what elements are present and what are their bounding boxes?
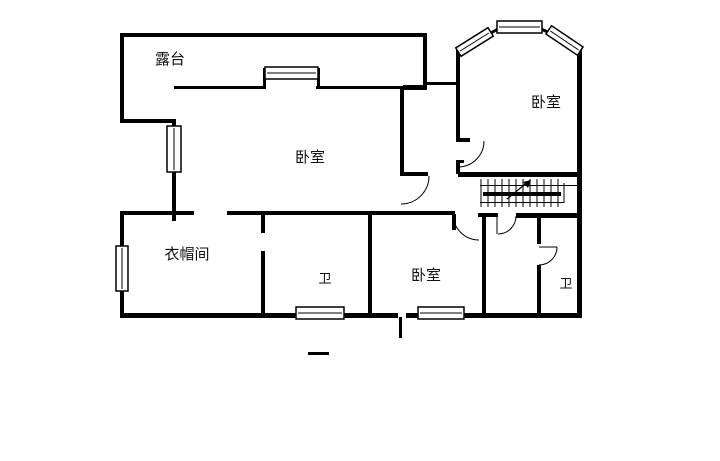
wall-bottom-stub [399, 317, 402, 338]
wall-corridor-d [516, 213, 578, 218]
wall-bedroom-hall [482, 213, 486, 315]
wall-exterior-right [577, 49, 582, 318]
wall-corridor-c [478, 213, 498, 217]
wall-terrace-top [120, 33, 425, 37]
door-arc-icon [458, 141, 484, 167]
stairs-direction-arrow-icon [507, 180, 531, 199]
wall-cloakroom-bath-upper [261, 213, 265, 233]
bay-window-right-icon [546, 26, 583, 56]
windows [116, 21, 583, 319]
wall-hall-strip-left-upper [423, 33, 427, 90]
wall-terrace-inner-bottom [120, 119, 176, 123]
wall-bayroom-bottom [458, 172, 580, 177]
wall-bedroom-top-left [174, 86, 266, 89]
wall-terrace-left [120, 33, 124, 123]
floor-plan-canvas: 露台 卧室 卧室 衣帽间 卫 卧室 卫 [0, 0, 720, 461]
wall-bayroom-door-jamb-top [456, 138, 470, 142]
wall-hall-bath-upper [537, 217, 541, 244]
room-label-cloakroom: 衣帽间 [164, 245, 209, 263]
room-label-bedroom-top-right: 卧室 [531, 93, 561, 111]
room-label-terrace: 露台 [155, 50, 185, 68]
wall-cloakroom-bath-lower [261, 251, 265, 315]
wall-hall-bath-lower [537, 265, 541, 315]
wall-bedroom-top-right [316, 86, 406, 89]
room-label-bedroom-center: 卧室 [295, 148, 325, 166]
wall-bedroom-door-stub [400, 172, 428, 176]
door-arc-icon [401, 176, 429, 204]
door-arc-icon [453, 214, 479, 240]
window-icon [418, 307, 464, 319]
wall-bath-bedroom [368, 213, 372, 315]
stair-stringer [483, 192, 561, 196]
wall-hall-strip-top [427, 82, 458, 85]
staircase [480, 179, 578, 207]
room-label-bathroom-right: 卫 [559, 277, 572, 292]
window-icon [497, 21, 542, 33]
wall-bedroom-right [400, 88, 404, 176]
wall-bayroom-left [456, 50, 460, 140]
window-icon [167, 126, 181, 172]
window-icon [296, 307, 344, 319]
wall-corridor-a [120, 211, 194, 215]
window-icon [116, 246, 128, 291]
scale-dash-icon [308, 352, 329, 355]
wall-exterior-bottom-a [120, 313, 398, 318]
room-label-bathroom-center: 卫 [318, 272, 331, 287]
bay-window-left-icon [456, 28, 494, 57]
window-icon [265, 67, 318, 79]
door-arc-icon [497, 216, 516, 234]
floor-plan-drawing: 露台 卧室 卧室 衣帽间 卫 卧室 卫 [0, 0, 720, 461]
door-arc-icon [539, 247, 557, 265]
room-label-bedroom-bottom: 卧室 [411, 266, 441, 284]
